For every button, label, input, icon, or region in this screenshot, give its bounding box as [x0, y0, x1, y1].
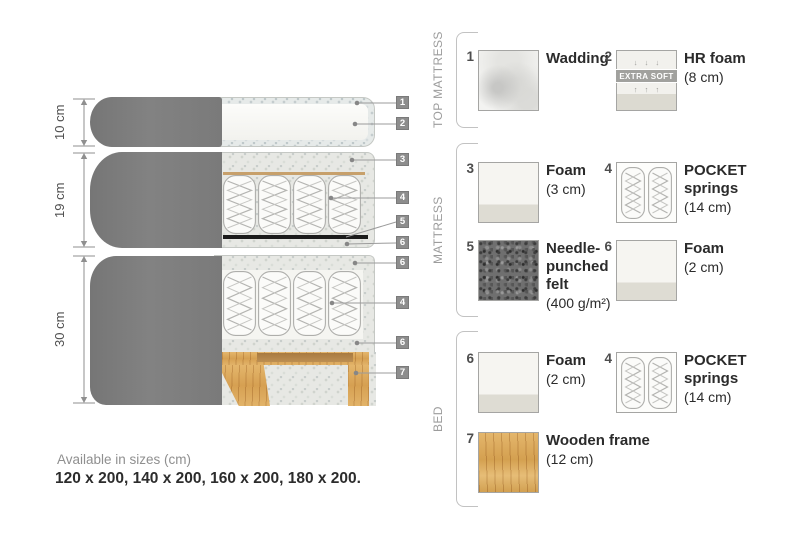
callout-badge: 6	[396, 236, 409, 249]
mattress-construction-diagram: 10 cm 19 cm 30 cm 1234566467 TOP MATTRES…	[0, 0, 800, 533]
callout-badge: 7	[396, 366, 409, 379]
callout-badge: 6	[396, 256, 409, 269]
callout-badge: 5	[396, 215, 409, 228]
callout-badge: 3	[396, 153, 409, 166]
callout-badge: 4	[396, 296, 409, 309]
callout-badge: 1	[396, 96, 409, 109]
callout-badge: 6	[396, 336, 409, 349]
callout-badge: 2	[396, 117, 409, 130]
callout-badge: 4	[396, 191, 409, 204]
